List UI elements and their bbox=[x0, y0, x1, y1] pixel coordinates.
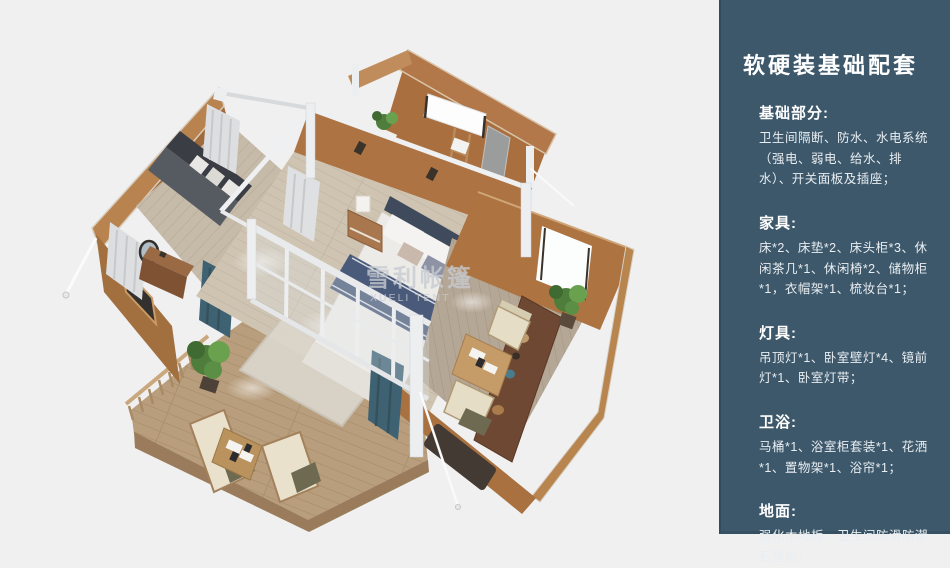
frame-post bbox=[306, 103, 315, 178]
frame-post bbox=[352, 64, 359, 96]
spec-section-furniture: 家具: 床*2、床垫*2、床头柜*3、休闲茶几*1、休闲椅*2、储物柜*1，衣帽… bbox=[743, 212, 934, 300]
frame-post bbox=[521, 183, 531, 257]
section-body: 马桶*1、浴室柜套装*1、花洒*1、置物架*1、浴帘*1； bbox=[759, 437, 928, 478]
section-body: 吊顶灯*1、卧室壁灯*4、镜前灯*1、卧室灯带； bbox=[759, 348, 928, 389]
watermark-cn: 雪利帐篷 bbox=[366, 264, 474, 292]
spec-sidebar: 软硬装基础配套 基础部分: 卫生间隔断、防水、水电系统（强电、弱电、给水、排水）… bbox=[719, 0, 950, 534]
sidebar-title: 软硬装基础配套 bbox=[743, 48, 934, 80]
section-heading: 地面: bbox=[759, 500, 928, 521]
section-body: 强化木地板、卫生间防滑防潮石塑板； bbox=[759, 526, 928, 567]
floor-plan-stage: 雪利帐篷 XUELI TENT bbox=[0, 0, 719, 534]
section-heading: 基础部分: bbox=[759, 102, 928, 123]
brochure-page: 雪利帐篷 XUELI TENT 软硬装基础配套 基础部分: 卫生间隔断、防水、水… bbox=[0, 0, 950, 534]
section-body: 卫生间隔断、防水、水电系统（强电、弱电、给水、排水）、开关面板及插座； bbox=[759, 128, 928, 190]
frame-post bbox=[247, 219, 256, 299]
floor-plan-illustration: 雪利帐篷 XUELI TENT bbox=[0, 0, 719, 534]
section-heading: 灯具: bbox=[759, 322, 928, 343]
spec-section-basics: 基础部分: 卫生间隔断、防水、水电系统（强电、弱电、给水、排水）、开关面板及插座… bbox=[743, 102, 934, 190]
section-heading: 家具: bbox=[759, 212, 928, 233]
section-body: 床*2、床垫*2、床头柜*3、休闲茶几*1、休闲椅*2、储物柜*1，衣帽架*1、… bbox=[759, 238, 928, 300]
spec-section-bathroom: 卫浴: 马桶*1、浴室柜套装*1、花洒*1、置物架*1、浴帘*1； bbox=[743, 411, 934, 478]
watermark-en: XUELI TENT bbox=[370, 292, 451, 304]
frame-post bbox=[410, 315, 423, 457]
spec-section-lighting: 灯具: 吊顶灯*1、卧室壁灯*4、镜前灯*1、卧室灯带； bbox=[743, 322, 934, 389]
section-heading: 卫浴: bbox=[759, 411, 928, 432]
table-lamp bbox=[356, 196, 370, 212]
